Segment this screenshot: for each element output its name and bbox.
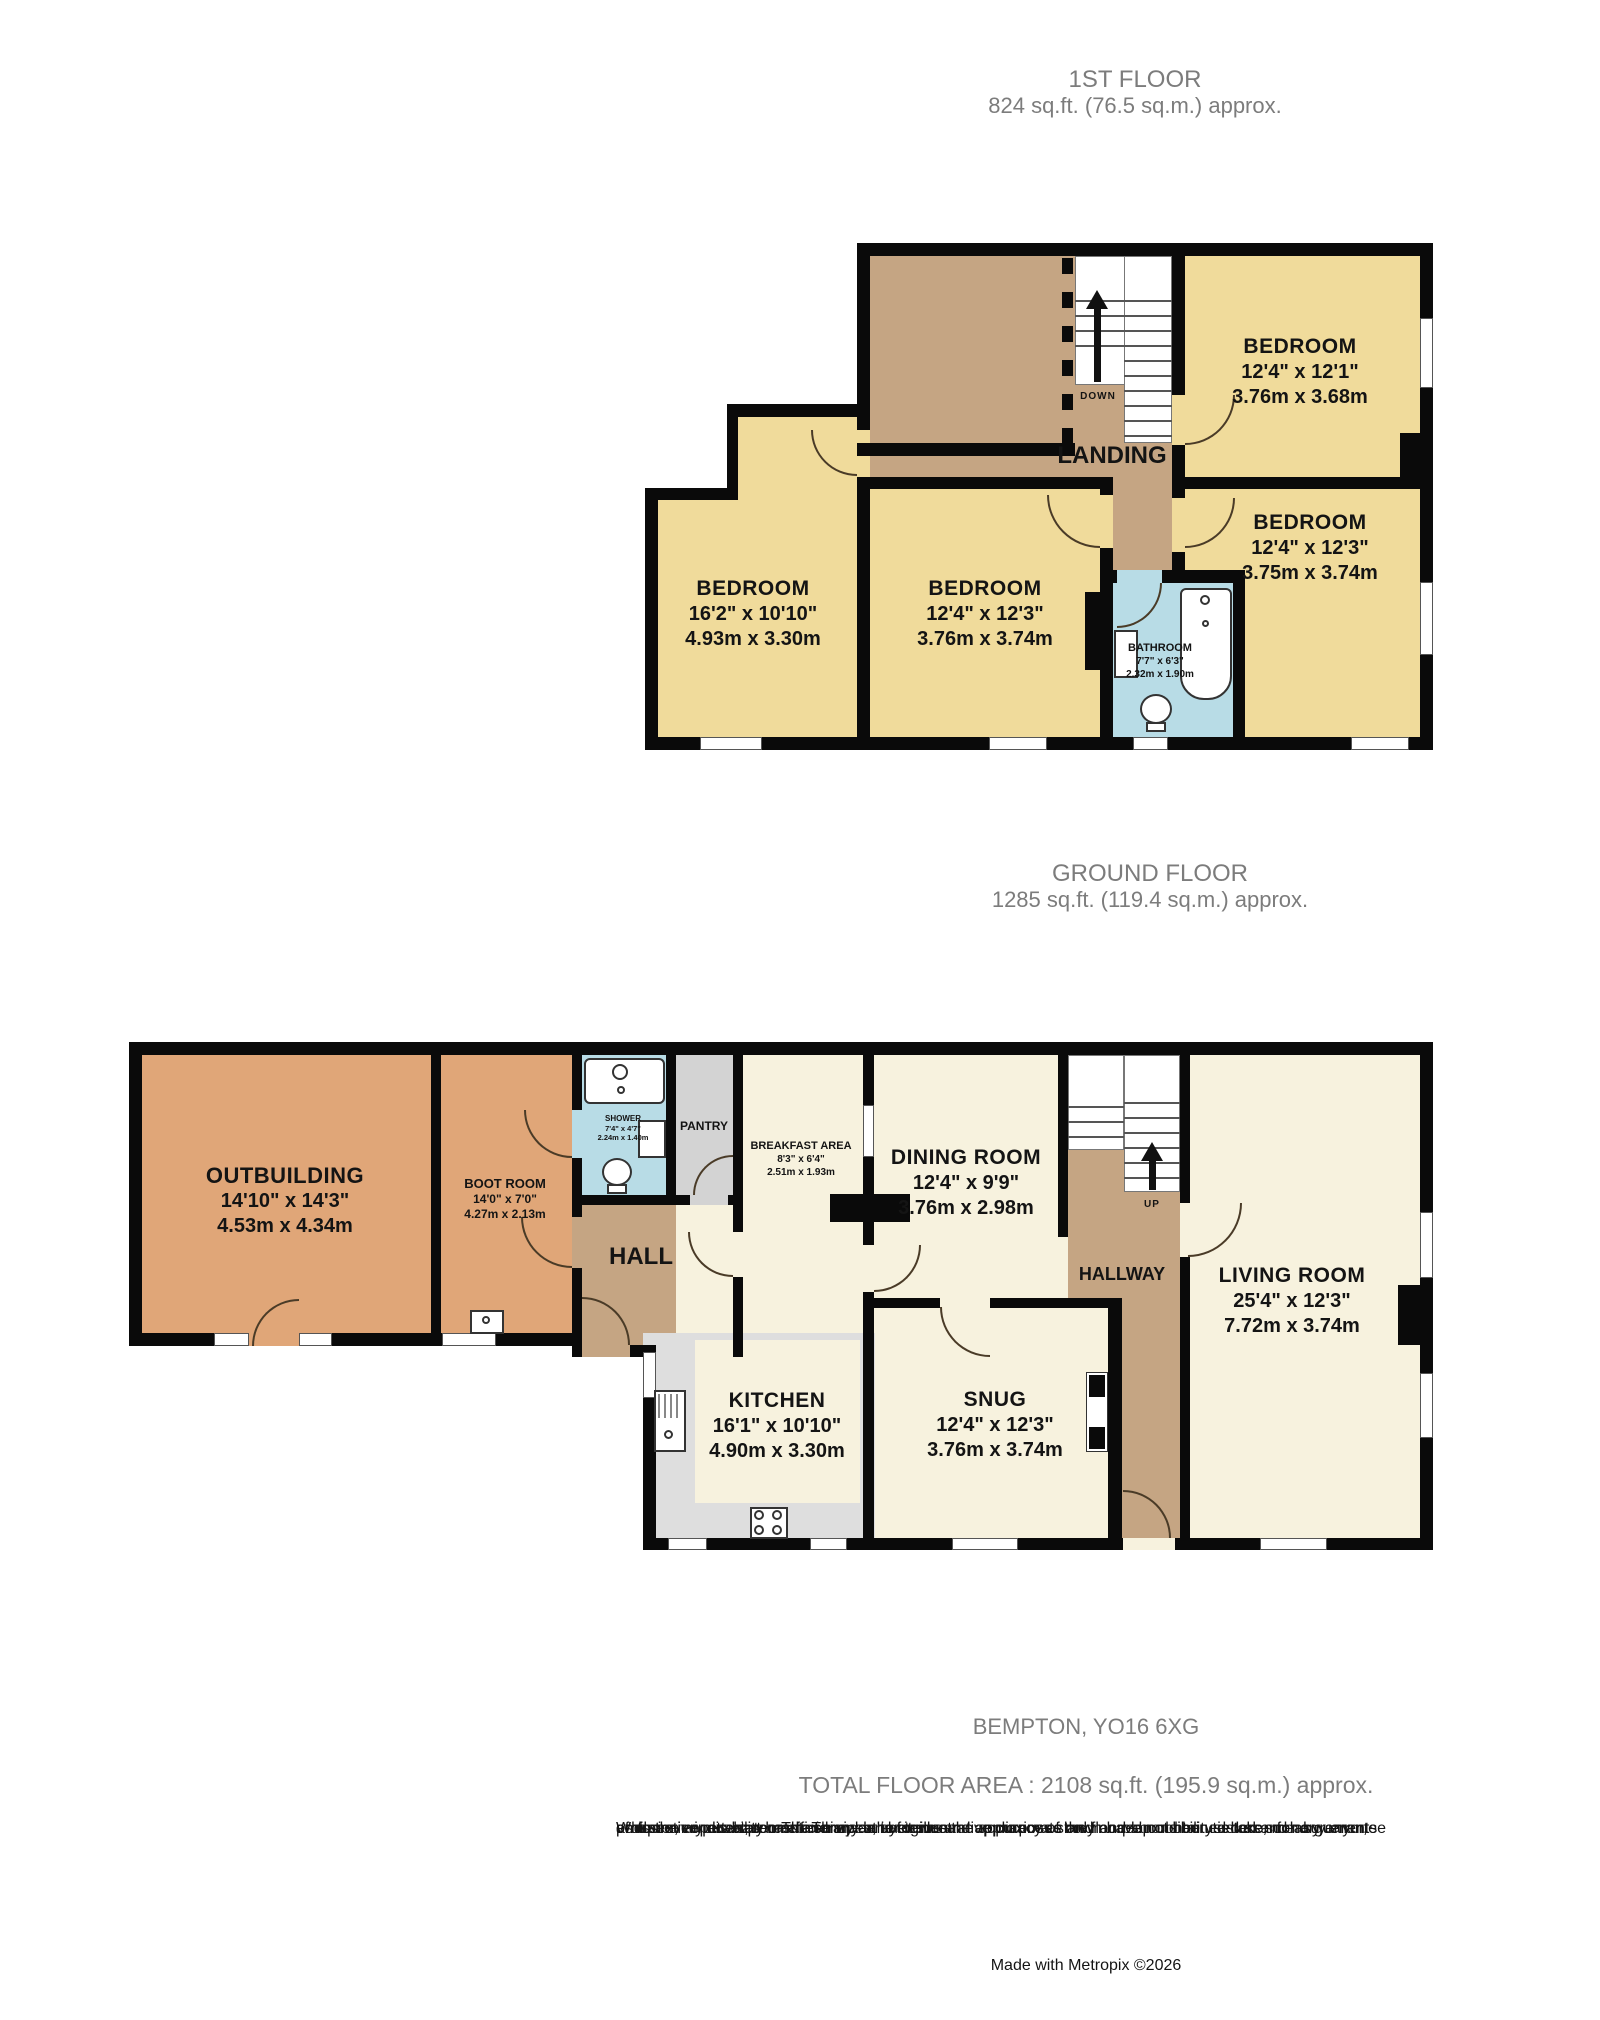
window xyxy=(989,737,1047,750)
total-floor-area: TOTAL FLOOR AREA : 2108 sq.ft. (195.9 sq… xyxy=(736,1772,1436,1799)
window xyxy=(700,737,762,750)
window xyxy=(299,1333,332,1346)
room-label-outbuilding: OUTBUILDING 14'10" x 14'3" 4.53m x 4.34m xyxy=(135,1163,435,1239)
wall xyxy=(1175,1538,1260,1550)
room-label-snug: SNUG 12'4" x 12'3" 3.76m x 3.74m xyxy=(845,1387,1145,1463)
hob-burner xyxy=(772,1510,782,1520)
shower-head xyxy=(612,1064,628,1080)
wall xyxy=(857,243,870,430)
wall xyxy=(129,1333,214,1346)
credit: Made with Metropix ©2026 xyxy=(886,1952,1286,1979)
toilet xyxy=(1140,694,1172,724)
window xyxy=(668,1538,707,1550)
room-label-hall: HALL xyxy=(566,1243,716,1271)
room-label-dining-room: DINING ROOM 12'4" x 9'9" 3.76m x 2.98m xyxy=(816,1145,1116,1221)
stair-arrow xyxy=(1094,308,1101,382)
stair-arrow-head xyxy=(1086,290,1108,309)
stairs-down-label: DOWN xyxy=(1073,391,1123,402)
stairs-up-label: UP xyxy=(1127,1199,1177,1210)
room-landing-upper xyxy=(857,256,1075,456)
room-label-living-room: LIVING ROOM 25'4" x 12'3" 7.72m x 3.74m xyxy=(1142,1263,1442,1339)
window xyxy=(1260,1538,1327,1550)
stair-treads xyxy=(1068,1106,1124,1150)
toilet-cistern xyxy=(1146,722,1166,732)
wall xyxy=(863,1298,940,1308)
address: BEMPTON, YO16 6XG xyxy=(886,1714,1286,1740)
wall xyxy=(1180,1042,1190,1203)
bath-tap xyxy=(1200,595,1210,605)
wall xyxy=(727,404,870,417)
wall xyxy=(129,1042,1433,1055)
room-label-landing: LANDING xyxy=(1012,442,1212,470)
wall xyxy=(1172,477,1433,489)
wall xyxy=(707,1538,810,1550)
room-label-pantry: PANTRY xyxy=(654,1119,754,1133)
wall xyxy=(727,404,738,500)
wall xyxy=(676,1195,690,1205)
wall xyxy=(496,1333,572,1346)
wall xyxy=(1100,477,1113,495)
window xyxy=(1420,1373,1433,1438)
ground-floor-title: GROUND FLOOR xyxy=(1000,860,1300,888)
stair-arrow-head xyxy=(1141,1142,1163,1161)
wall xyxy=(572,1345,582,1357)
tap xyxy=(482,1316,490,1324)
hob-burner xyxy=(772,1525,782,1535)
ground-floor-area: 1285 sq.ft. (119.4 sq.m.) approx. xyxy=(950,887,1350,913)
wall xyxy=(1327,1538,1433,1550)
chimney-breast xyxy=(1400,433,1420,477)
wall xyxy=(733,1042,743,1232)
floorplan-page: 1ST FLOOR 824 sq.ft. (76.5 sq.m.) approx… xyxy=(0,0,1600,2020)
window xyxy=(442,1333,496,1346)
wall xyxy=(643,1538,668,1550)
wall xyxy=(857,243,1433,256)
wall xyxy=(332,1333,442,1346)
wall xyxy=(733,1277,743,1357)
window xyxy=(952,1538,1018,1550)
wall xyxy=(572,1042,582,1110)
window xyxy=(1133,737,1168,750)
first-floor-area: 824 sq.ft. (76.5 sq.m.) approx. xyxy=(935,93,1335,119)
stair-opening-dashed xyxy=(1062,258,1073,445)
stair-arrow xyxy=(1149,1160,1156,1190)
first-floor-title: 1ST FLOOR xyxy=(985,66,1285,94)
wall xyxy=(645,488,738,500)
wall xyxy=(582,1195,676,1205)
room-label-boot-room: BOOT ROOM 14'0" x 7'0" 4.27m x 2.13m xyxy=(425,1176,585,1222)
wall xyxy=(1018,1538,1123,1550)
hob-burner xyxy=(754,1525,764,1535)
window xyxy=(810,1538,847,1550)
wall xyxy=(572,1268,582,1357)
wall xyxy=(857,477,1113,489)
shower-drain xyxy=(617,1086,625,1094)
wall xyxy=(990,1298,1122,1308)
wall xyxy=(863,1042,874,1105)
room-label-bedroom-right: BEDROOM 12'4" x 12'3" 3.75m x 3.74m xyxy=(1160,510,1460,586)
hob-burner xyxy=(754,1510,764,1520)
room-label-bedroom-top-right: BEDROOM 12'4" x 12'1" 3.76m x 3.68m xyxy=(1150,334,1450,410)
toilet-cistern xyxy=(607,1184,627,1194)
bath-drain xyxy=(1202,620,1209,627)
wall xyxy=(847,1538,952,1550)
window xyxy=(214,1333,249,1346)
window xyxy=(1420,582,1433,655)
room-label-bathroom: BATHROOM 7'7" x 6'3" 2.32m x 1.90m xyxy=(1080,641,1240,681)
window xyxy=(1351,737,1409,750)
toilet xyxy=(602,1158,632,1186)
